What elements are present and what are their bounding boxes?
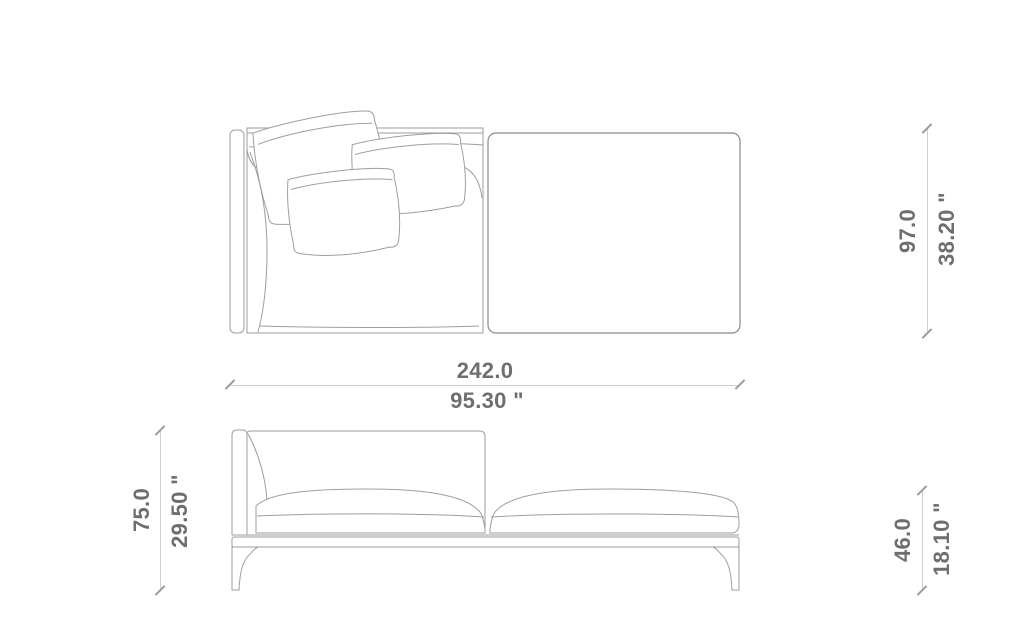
top-view-drawing (225, 100, 745, 340)
top-view-chaise (488, 133, 740, 333)
top-view-arm (230, 130, 244, 333)
top-view-back-cushion-front (285, 166, 402, 259)
depth-dimension-line (927, 128, 928, 333)
front-view-left-leg (232, 547, 258, 590)
seat-height-dimension-cm-label: 46.0 (890, 518, 916, 562)
front-view-seat-cushions (256, 489, 739, 533)
depth-dimension-inches-label: 38.20 " (934, 192, 960, 266)
front-view-right-leg (713, 547, 739, 590)
depth-dimension-cm-label: 97.0 (895, 209, 921, 253)
width-dimension-inches-label: 95.30 " (450, 388, 524, 414)
technical-drawing-canvas: 242.0 95.30 " 97.0 38.20 " 75.0 29.50 " … (0, 0, 1024, 640)
seat-height-dimension-line (922, 490, 923, 590)
height-dimension-cm-label: 75.0 (129, 488, 155, 532)
height-dimension-inches-label: 29.50 " (167, 474, 193, 548)
width-dimension-cm-label: 242.0 (457, 358, 514, 384)
width-dimension-line (230, 385, 740, 386)
front-view-base-rail (232, 535, 739, 547)
seat-height-dimension-inches-label: 18.10 " (929, 502, 955, 576)
height-dimension-line (160, 430, 161, 590)
front-view-drawing (225, 420, 745, 600)
